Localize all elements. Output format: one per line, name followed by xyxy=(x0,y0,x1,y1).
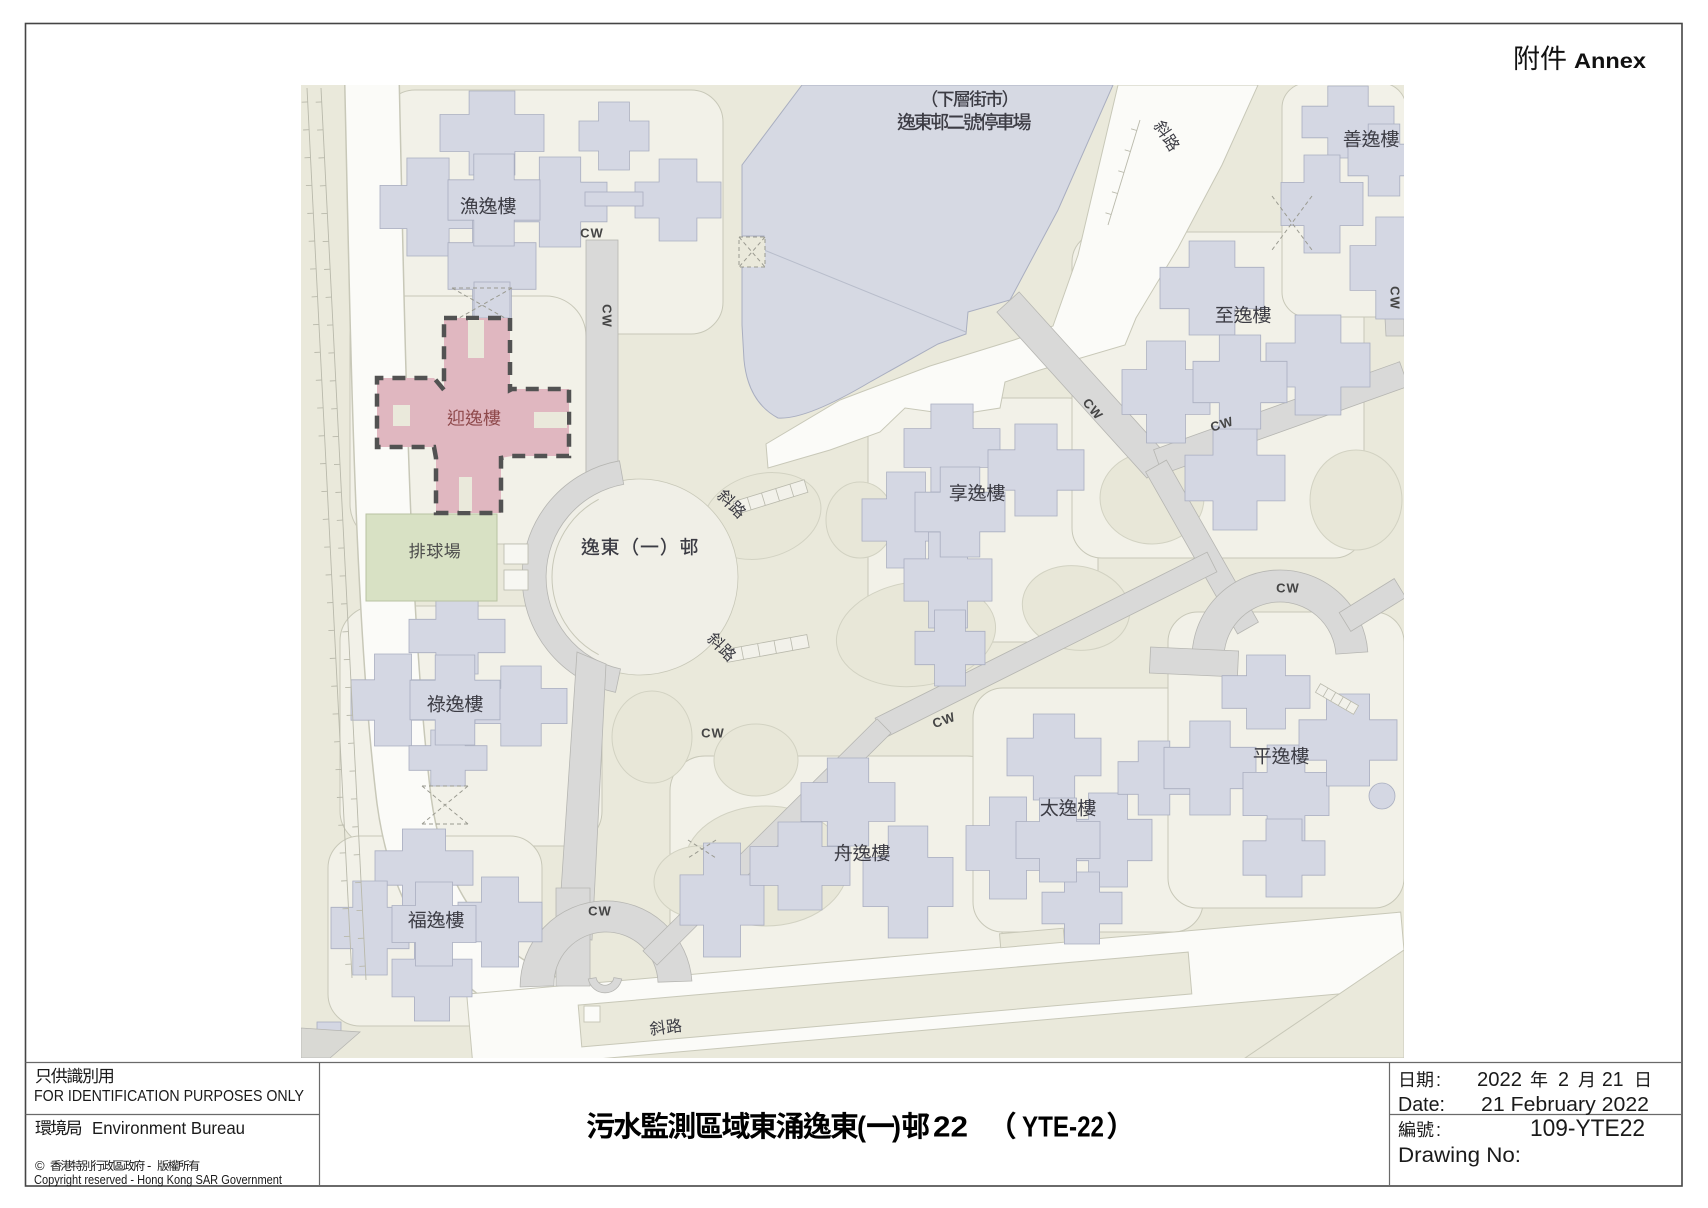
svg-text:109-YTE22: 109-YTE22 xyxy=(1530,1115,1645,1142)
svg-text:): ) xyxy=(892,1112,901,1144)
svg-text:CW: CW xyxy=(701,726,725,741)
svg-text:CW: CW xyxy=(600,304,615,328)
svg-text:22: 22 xyxy=(933,1112,968,1144)
svg-text:2: 2 xyxy=(1558,1068,1569,1091)
svg-text:21: 21 xyxy=(1602,1068,1624,1091)
svg-text:Date:: Date: xyxy=(1398,1094,1445,1116)
svg-text:Copyright reserved - Hong Kong: Copyright reserved - Hong Kong SAR Gover… xyxy=(34,1173,282,1187)
svg-text:(: ( xyxy=(857,1112,866,1144)
svg-text:©: © xyxy=(35,1158,45,1173)
svg-text:CW: CW xyxy=(580,226,604,241)
svg-text:CW: CW xyxy=(588,904,612,919)
svg-text:Environment Bureau: Environment Bureau xyxy=(92,1118,245,1138)
svg-text:21 February 2022: 21 February 2022 xyxy=(1481,1093,1649,1116)
svg-text:YTE-22: YTE-22 xyxy=(1022,1112,1104,1144)
svg-text:FOR IDENTIFICATION PURPOSES ON: FOR IDENTIFICATION PURPOSES ONLY xyxy=(34,1088,304,1105)
svg-text:2022: 2022 xyxy=(1477,1068,1522,1091)
svg-text:Annex: Annex xyxy=(1574,49,1646,73)
svg-text::: : xyxy=(1436,1070,1441,1090)
svg-text:CW: CW xyxy=(1388,286,1403,310)
svg-text:CW: CW xyxy=(1276,581,1300,596)
svg-text:-: - xyxy=(147,1158,151,1173)
svg-text:Drawing No:: Drawing No: xyxy=(1398,1144,1521,1167)
svg-text::: : xyxy=(1436,1120,1441,1140)
